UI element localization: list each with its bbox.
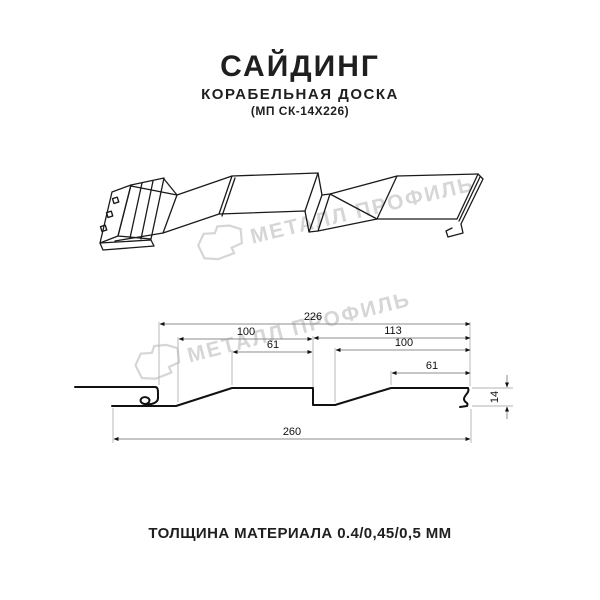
catalog-page: { "header": { "title": "САЙДИНГ", "subti… (0, 0, 600, 600)
lock-seam-curl (141, 397, 158, 404)
dim-label-14: 14 (489, 391, 501, 403)
dim-label-226: 226 (304, 311, 322, 323)
dim-label-100-left: 100 (237, 326, 255, 338)
dim-label-113: 113 (384, 325, 402, 337)
dim-label-260: 260 (283, 426, 301, 438)
thickness-note: ТОЛЩИНА МАТЕРИАЛА 0.4/0,45/0,5 ММ (0, 525, 600, 542)
dim-label-61-right: 61 (426, 360, 438, 372)
nail-strip (100, 185, 131, 243)
dim-label-100-right: 100 (395, 337, 413, 349)
technical-drawing: МЕТАЛЛ ПРОФИЛЬ МЕТАЛЛ ПРОФИЛЬ (0, 0, 600, 600)
watermark-text-lower: МЕТАЛЛ ПРОФИЛЬ (185, 288, 413, 368)
dimension-lines (114, 324, 507, 439)
bottom-lip (100, 240, 154, 250)
extension-lines (113, 322, 513, 443)
section-profile (112, 388, 468, 407)
watermark-logo-upper: МЕТАЛЛ ПРОФИЛЬ (195, 166, 477, 263)
watermark-logo-lower: МЕТАЛЛ ПРОФИЛЬ (132, 281, 414, 383)
dim-label-61-left: 61 (267, 339, 279, 351)
end-hook (446, 224, 463, 237)
